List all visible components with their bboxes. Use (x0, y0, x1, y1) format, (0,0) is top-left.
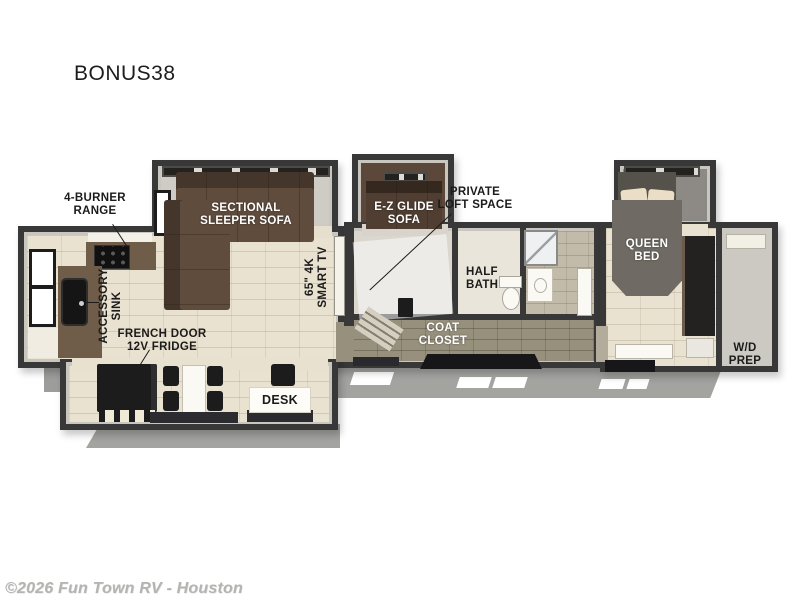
dinette-chair (207, 366, 223, 386)
wardrobe-icon (682, 236, 715, 336)
label-line: SECTIONAL (186, 202, 306, 215)
label-sectional-sofa: SECTIONAL SLEEPER SOFA (186, 202, 306, 228)
faucet-icon (79, 301, 84, 306)
entry-steps-main (420, 354, 542, 369)
label-line: FRENCH DOOR (112, 328, 212, 341)
leader-line-sink (85, 302, 99, 303)
floor-mat (150, 412, 238, 423)
label-line: BATH (466, 279, 516, 292)
label-line: SMART TV (317, 246, 330, 307)
desk-label-box: DESK (249, 387, 311, 413)
label-line: W/D (722, 342, 768, 355)
label-line: RANGE (52, 205, 138, 218)
bedroom-dresser (686, 338, 714, 358)
shower-icon (524, 230, 558, 266)
fridge-base (99, 410, 155, 422)
page-title: BONUS38 (74, 62, 176, 86)
dinette-chair (207, 391, 223, 411)
label-line: COAT (408, 322, 478, 335)
bath-vanity (527, 268, 553, 302)
label-line: HALF (466, 266, 516, 279)
label-line: 12V FRIDGE (112, 341, 212, 354)
floorplan-image: BONUS38 ©2026 Fun Town RV - Houston (0, 0, 800, 600)
label-line: 65" 4K (304, 246, 317, 307)
label-line: QUEEN (619, 238, 675, 251)
label-line: ACCESSORY (98, 268, 111, 343)
dinette-chair (163, 391, 179, 411)
fridge-icon (97, 364, 157, 412)
label-line: CLOSET (408, 335, 478, 348)
sink-icon (61, 278, 88, 326)
label-line: SLEEPER SOFA (186, 215, 306, 228)
label-line: BED (619, 251, 675, 264)
kitchen-window (29, 249, 56, 327)
window-crossbar (32, 285, 53, 289)
label-coat-closet: COAT CLOSET (408, 322, 478, 348)
opening-hall-living (336, 322, 354, 362)
vanity-basin (534, 278, 547, 293)
label-range: 4-BURNER RANGE (52, 192, 138, 218)
watermark: ©2026 Fun Town RV - Houston (5, 580, 243, 598)
label-smart-tv: 65" 4K SMART TV (304, 246, 330, 307)
label-queen-bed: QUEEN BED (619, 238, 675, 264)
dinette-chair (163, 366, 179, 386)
bedroom-steps (605, 360, 655, 372)
label-line: 4-BURNER (52, 192, 138, 205)
loft-chair (398, 298, 413, 317)
entry-steps-living (353, 357, 399, 366)
wall-living-mid (344, 226, 354, 326)
dinette-table (182, 365, 206, 415)
label-wd-prep: W/D PREP (722, 342, 768, 368)
storage-bay-door (492, 377, 528, 388)
label-line: SOFA (366, 214, 442, 227)
label-private-loft: PRIVATE LOFT SPACE (425, 186, 525, 212)
desk-chair (271, 364, 295, 386)
label-half-bath: HALF BATH (466, 266, 516, 292)
tv-icon (334, 236, 345, 316)
label-desk: DESK (262, 393, 298, 407)
label-line: PREP (722, 355, 768, 368)
label-line: PRIVATE (425, 186, 525, 199)
storage-bay-door (598, 379, 625, 389)
label-line: LOFT SPACE (425, 199, 525, 212)
storage-bay-door (350, 372, 394, 385)
storage-bay-door (626, 379, 649, 389)
wall-loft-halfbath (452, 226, 458, 320)
bath-door (577, 268, 592, 316)
storage-bay-door (456, 377, 492, 388)
opening-hall-bedroom (596, 326, 608, 362)
bed-bench (615, 344, 673, 359)
label-fridge: FRENCH DOOR 12V FRIDGE (112, 328, 212, 354)
wd-shelf (726, 234, 766, 249)
